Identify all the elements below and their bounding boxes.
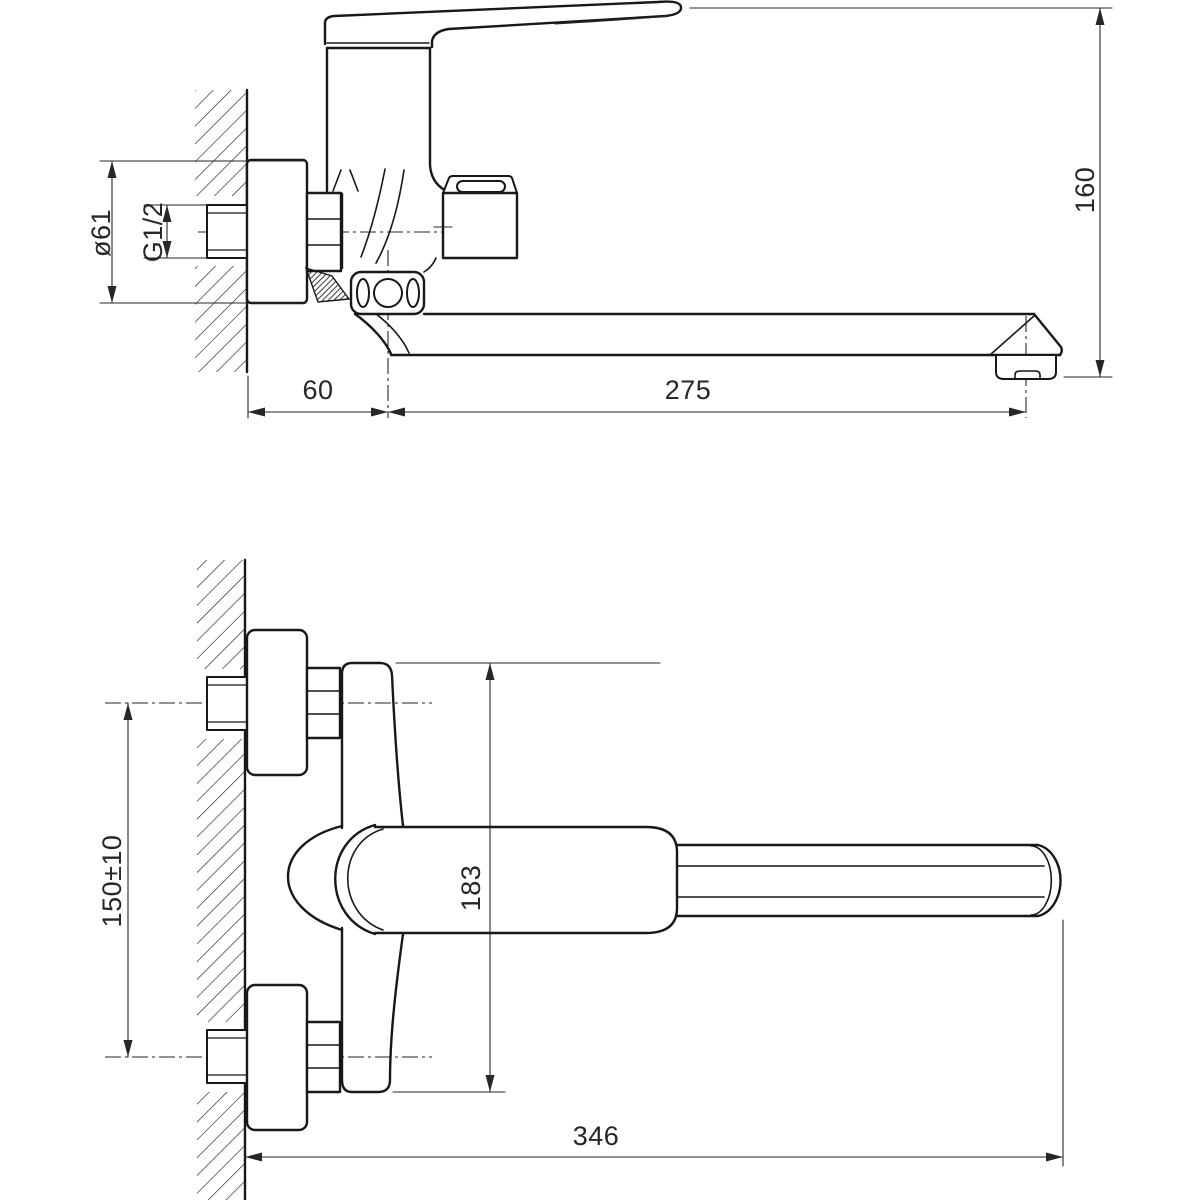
wall-hatch: [197, 560, 245, 1200]
barrel-side-detail: [357, 279, 369, 307]
arrowhead-left: [245, 1153, 262, 1162]
body-contour-line: [361, 169, 385, 257]
arrowhead-down: [486, 1075, 495, 1092]
body-right-edge: [430, 48, 443, 189]
diverter-knob: [443, 193, 517, 258]
barrel-side-detail: [407, 279, 419, 307]
handle-edge-highlight: [555, 16, 667, 24]
arrowhead-up: [124, 703, 133, 720]
handle-cap-outer: [335, 825, 375, 934]
barrel-pivot-circle: [374, 279, 402, 307]
dim-label-flange-diameter: ø61: [86, 209, 116, 257]
diverter-grip-slot: [457, 181, 505, 192]
hex-nut: [307, 193, 341, 271]
exposed-thread-nipple: [306, 268, 349, 302]
body-lower: [342, 928, 403, 1092]
dim-label-total-height: 160: [1070, 167, 1100, 214]
drawing-page: ø61 G1/2 60 275 160: [0, 0, 1200, 1200]
spout-end-chamfer: [990, 316, 1034, 355]
dim-label-mounting-centers: 150±10: [97, 835, 127, 928]
arrowhead-right: [1046, 1153, 1063, 1162]
arrowhead-down: [1096, 360, 1105, 377]
lever-handle: [325, 2, 681, 47]
arrowhead-left: [248, 408, 265, 417]
front-view: 150±10 183 346: [97, 560, 1063, 1200]
spout-end-cap: [1038, 845, 1061, 916]
body-dome-profile: [288, 826, 342, 930]
body-upper: [342, 663, 403, 828]
dim-label-thread-size: G1/2: [138, 202, 168, 263]
arrowhead-right: [371, 408, 388, 417]
side-view: ø61 G1/2 60 275 160: [86, 2, 1112, 418]
body-neck-right-edge: [424, 258, 436, 272]
aerator: [996, 355, 1056, 379]
arrowhead-left: [388, 408, 405, 417]
lever-handle-front: [375, 827, 677, 933]
hex-nut: [307, 1022, 340, 1092]
dim-label-spout-offset: 60: [302, 375, 333, 405]
arrowhead-up: [108, 161, 117, 178]
dim-label-body-height: 183: [456, 865, 486, 912]
dim-label-spout-reach: 275: [665, 375, 712, 405]
arrowhead-down: [124, 1040, 133, 1057]
dim-label-overall-length: 346: [573, 1121, 620, 1151]
arrowhead-up: [1096, 8, 1105, 25]
arrowhead-up: [486, 663, 495, 680]
arrowhead-down: [108, 286, 117, 303]
arrowhead-right: [1009, 408, 1026, 417]
escutcheon: [247, 160, 307, 303]
handle-cap-inner: [348, 829, 383, 930]
escutcheon: [247, 985, 307, 1130]
spout-end-slant: [1034, 314, 1062, 355]
spout-end-cap-inner: [1031, 846, 1051, 915]
body-break-mark: [350, 170, 358, 191]
escutcheon: [247, 630, 307, 775]
body-contour-line: [376, 170, 404, 263]
faucet-technical-drawing: ø61 G1/2 60 275 160: [0, 0, 1200, 1200]
spout-root-cut: [355, 314, 391, 354]
body-break-mark: [333, 170, 341, 191]
spout-root-cut-inner: [376, 314, 409, 353]
hex-nut: [307, 668, 340, 738]
